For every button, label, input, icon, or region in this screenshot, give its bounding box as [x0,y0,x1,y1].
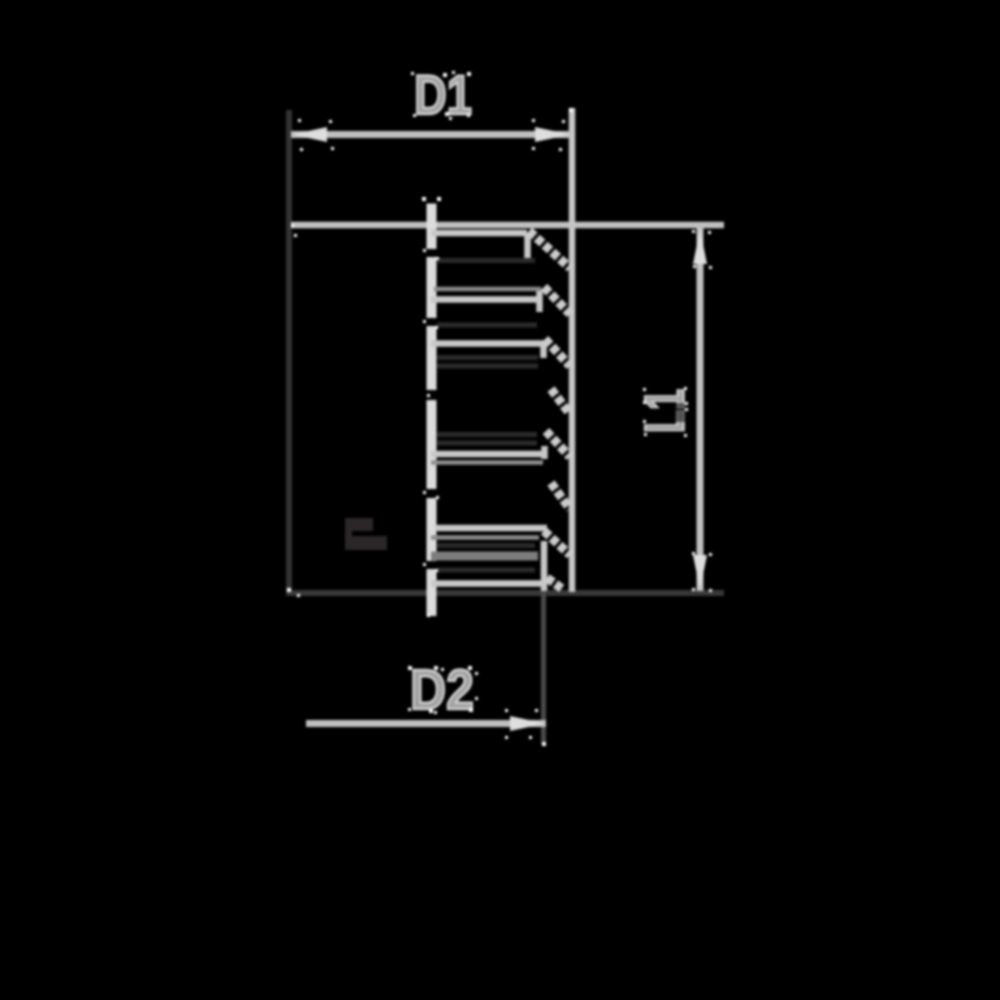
svg-text:D1: D1 [414,63,472,126]
svg-text:D2: D2 [410,658,474,722]
